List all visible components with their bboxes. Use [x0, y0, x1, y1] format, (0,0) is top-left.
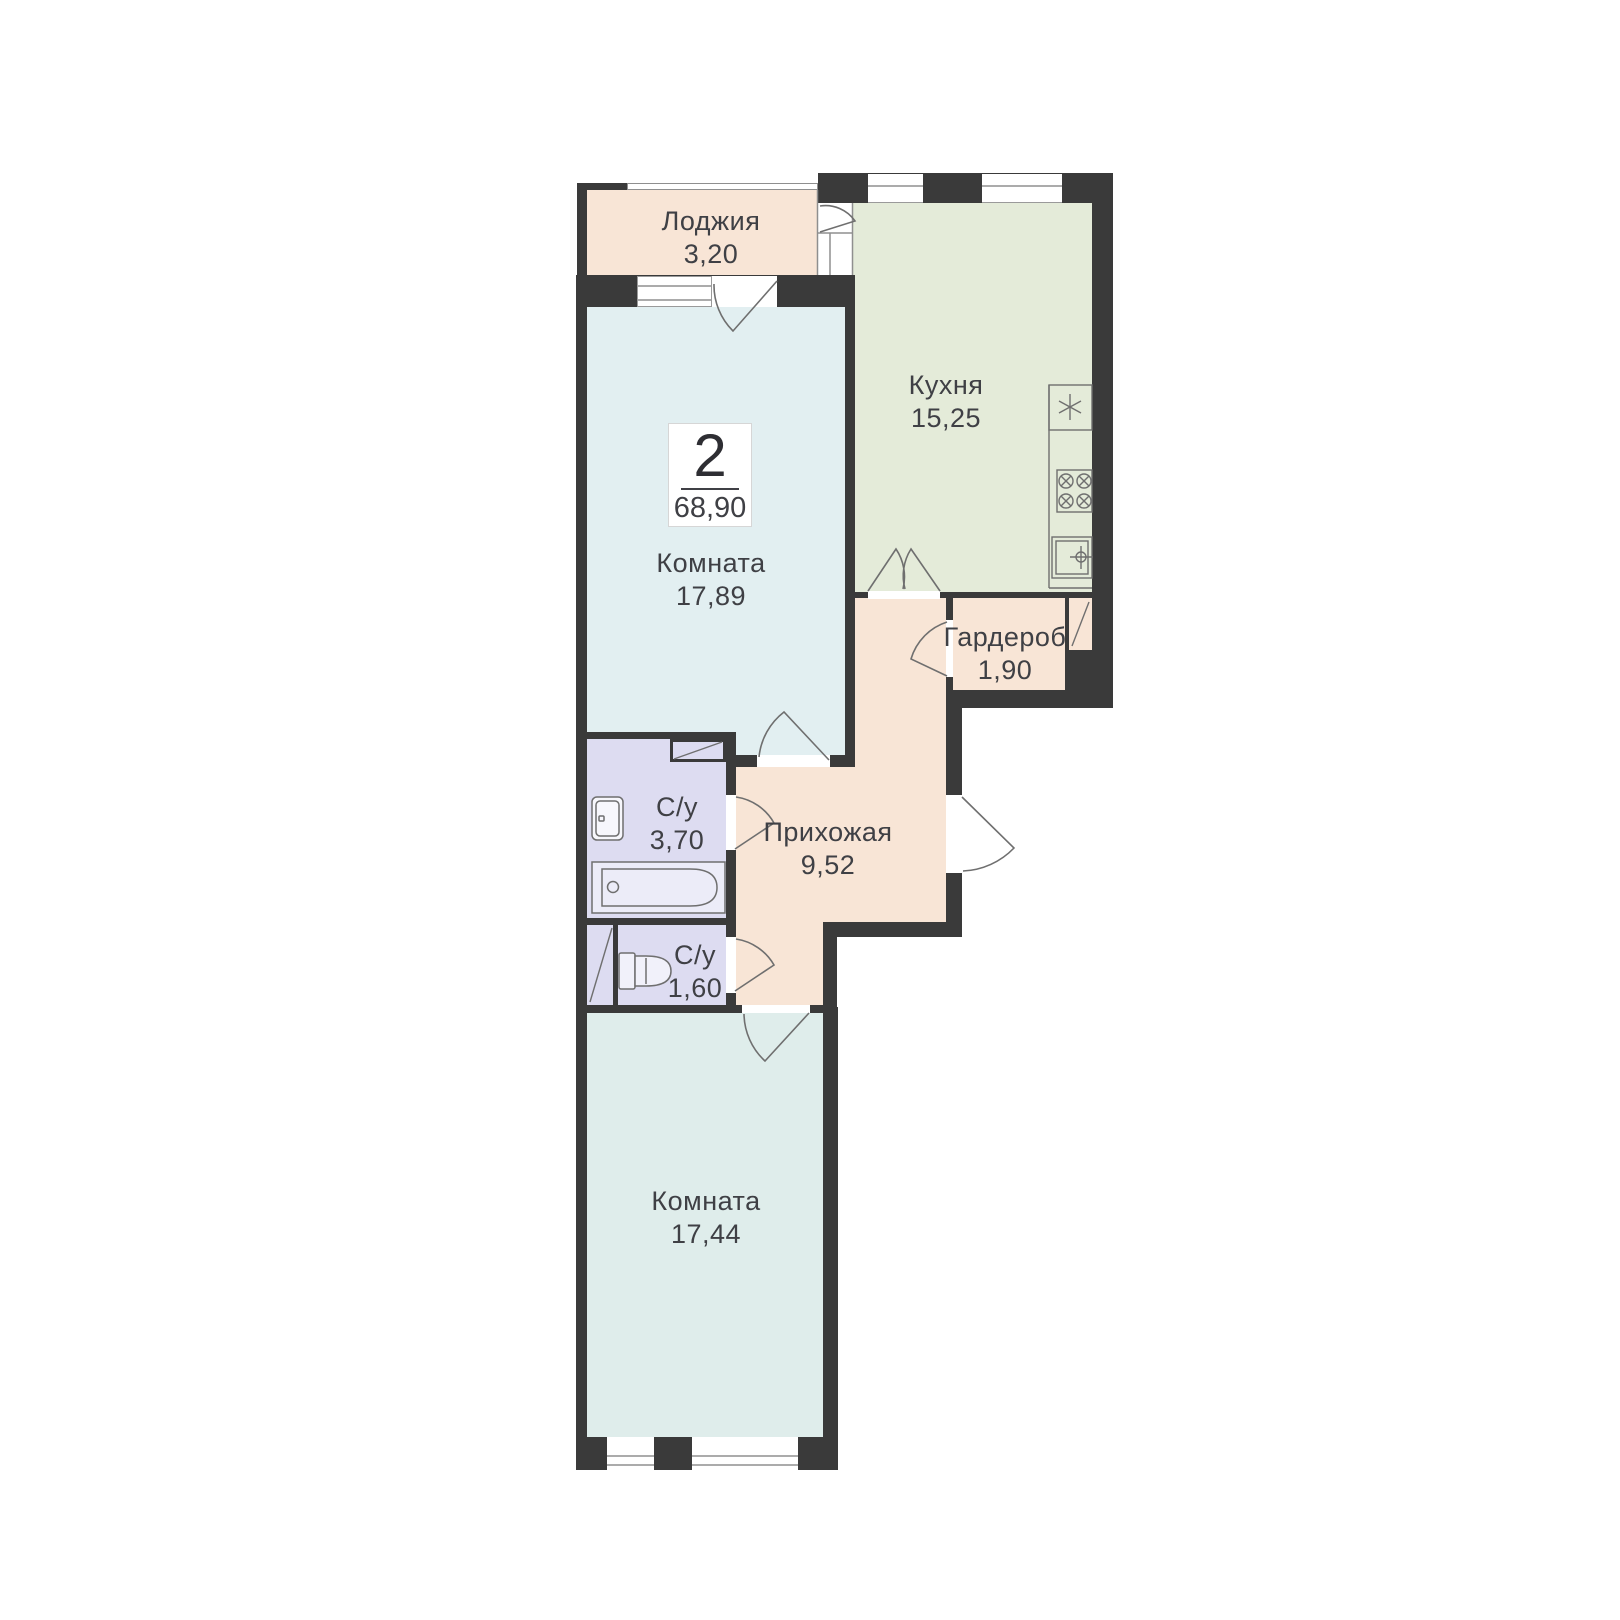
wall-segment — [818, 173, 1113, 203]
kitchen-window — [868, 174, 923, 203]
kitchen-label: Кухня 15,25 — [909, 369, 984, 435]
balcony-passage — [818, 203, 853, 275]
room-area-value: 17,44 — [651, 1218, 760, 1251]
vent-shaft-bath — [670, 739, 726, 762]
room2-window — [692, 1437, 798, 1470]
entrance-door-arc-icon — [962, 797, 1014, 871]
wall-segment — [576, 918, 736, 925]
kitchen-window — [982, 174, 1062, 203]
room-name: Прихожая — [763, 817, 892, 847]
wall-segment — [837, 922, 962, 937]
room-area-value: 1,60 — [668, 972, 723, 1005]
room-area-value: 3,20 — [662, 238, 761, 271]
vent-shaft-wardrobe — [1069, 598, 1092, 650]
wall-segment — [845, 275, 855, 767]
room1-door-opening — [757, 755, 830, 767]
wall-segment — [823, 922, 837, 1013]
wall-segment — [654, 1437, 692, 1470]
bath2-door-opening — [726, 937, 736, 993]
wall-segment — [576, 275, 587, 1470]
bath1-label: С/у 3,70 — [650, 791, 705, 857]
balcony-door-opening — [712, 276, 777, 307]
room-name: Лоджия — [662, 206, 761, 236]
entrance-door-opening — [946, 795, 962, 873]
floor-plan: 2 68,90 Лоджия 3,20 Кухня 15,25 Комната … — [0, 0, 1620, 1620]
room1-label: Комната 17,89 — [656, 547, 765, 613]
loggia-glazing-window — [627, 183, 818, 190]
room-name: С/у — [674, 940, 716, 970]
badge-divider — [681, 488, 739, 490]
wall-segment — [823, 1007, 838, 1470]
room-name: Комната — [651, 1186, 760, 1216]
bath2-label: С/у 1,60 — [668, 939, 723, 1005]
loggia-label: Лоджия 3,20 — [662, 205, 761, 271]
kitchen-door-opening — [868, 591, 940, 599]
room2-label: Комната 17,44 — [651, 1185, 760, 1251]
rooms-count: 2 — [693, 425, 726, 487]
wall-segment — [613, 925, 618, 1005]
total-area-value: 68,90 — [674, 492, 747, 525]
room2-window — [607, 1437, 654, 1470]
room-hallway-area — [736, 922, 823, 1005]
room-name: Комната — [656, 548, 765, 578]
room-area-value: 3,70 — [650, 824, 705, 857]
wall-segment — [1092, 173, 1113, 708]
room-area-value: 15,25 — [909, 402, 984, 435]
wall-segment — [576, 732, 736, 739]
wall-segment — [1065, 650, 1092, 690]
wall-segment — [577, 183, 587, 275]
room-area-value: 17,89 — [656, 580, 765, 613]
wall-segment — [576, 1437, 607, 1470]
room-area-value: 9,52 — [763, 849, 892, 882]
loggia-window — [637, 276, 712, 307]
hallway-label: Прихожая 9,52 — [763, 816, 892, 882]
wall-segment — [798, 1437, 838, 1470]
apartment-type-badge: 2 68,90 — [668, 423, 752, 527]
bath1-door-opening — [726, 795, 736, 850]
wall-segment — [946, 690, 1113, 708]
room-name: С/у — [656, 792, 698, 822]
room-name: Гардероб — [944, 622, 1067, 652]
room2-door-opening — [742, 1005, 810, 1013]
room-living1-area — [587, 307, 845, 757]
room-name: Кухня — [909, 370, 984, 400]
room-area-value: 1,90 — [944, 654, 1067, 687]
wardrobe-label: Гардероб 1,90 — [944, 621, 1067, 687]
